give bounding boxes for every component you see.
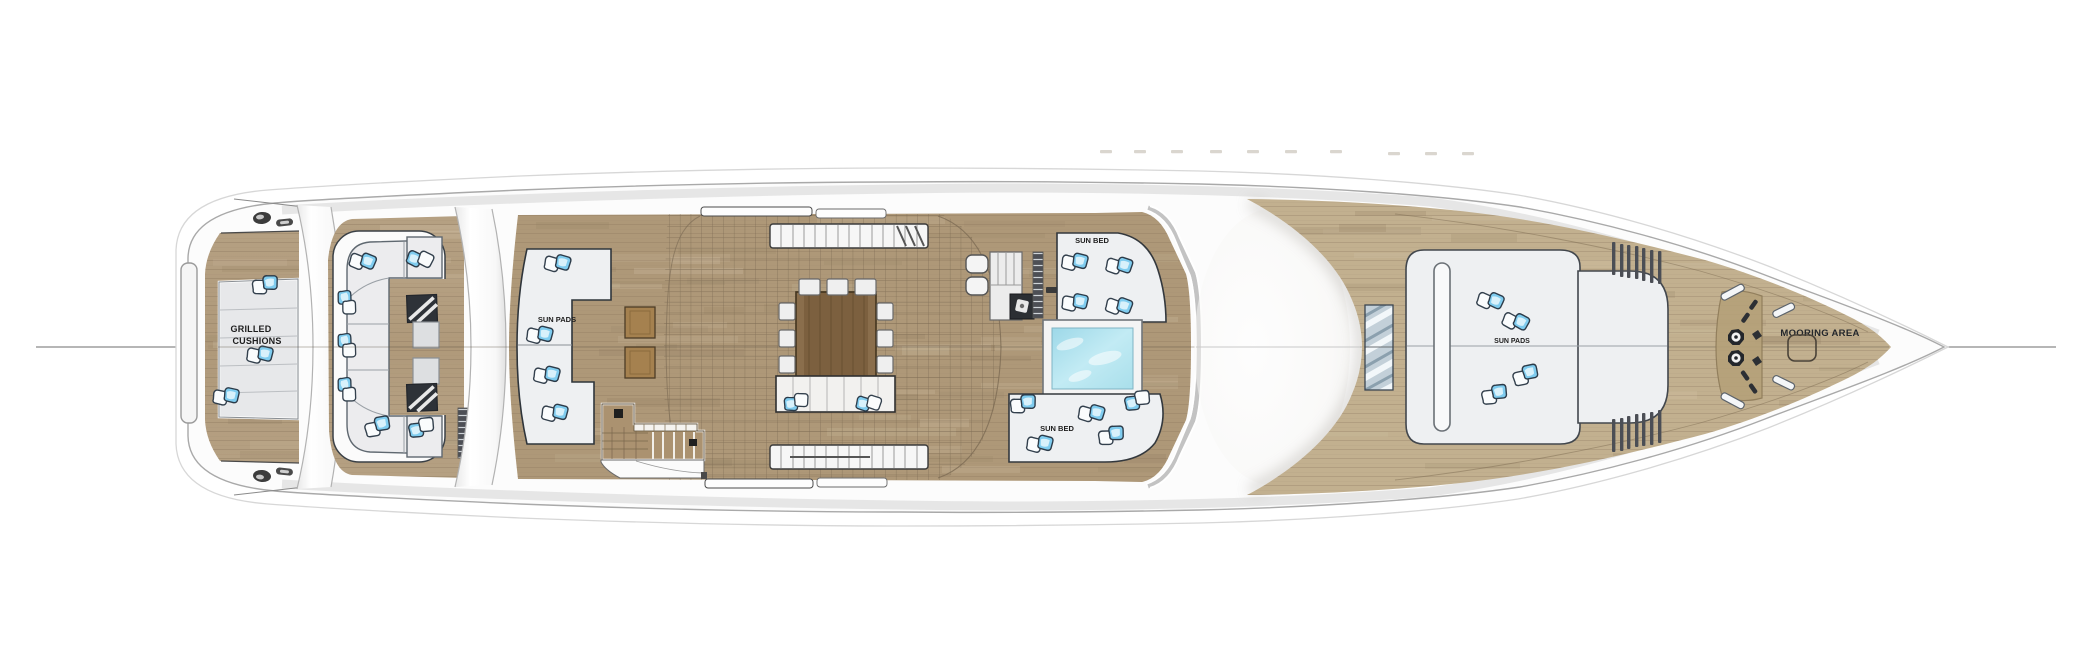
svg-text:CUSHIONS: CUSHIONS xyxy=(232,336,281,346)
svg-text:GRILLED: GRILLED xyxy=(231,324,272,334)
svg-text:SUN PADS: SUN PADS xyxy=(538,315,576,324)
svg-text:SUN BED: SUN BED xyxy=(1040,424,1074,433)
svg-text:SUN PADS: SUN PADS xyxy=(1494,338,1530,345)
svg-text:MOORING AREA: MOORING AREA xyxy=(1780,328,1859,339)
svg-text:SUN BED: SUN BED xyxy=(1075,236,1109,245)
